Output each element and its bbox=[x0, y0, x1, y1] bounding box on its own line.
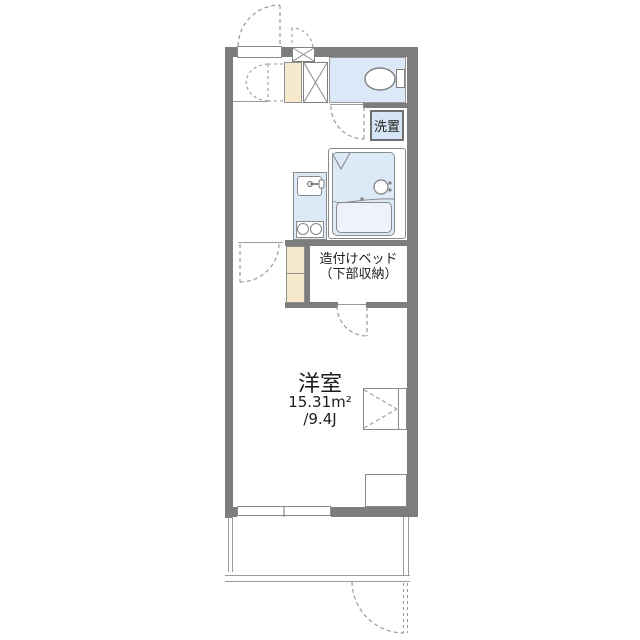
room-door-swing-arc bbox=[240, 243, 279, 282]
stove-burner-left-icon bbox=[298, 224, 309, 235]
floorplan-canvas: 洗置 造付けベッド （下部収納） 洋室 15.31m² /9.4J bbox=[0, 0, 640, 640]
meter-box-door-swing-arc bbox=[292, 28, 313, 47]
meter-box-cross-icon bbox=[293, 48, 314, 61]
bath-tap-dot-2 bbox=[388, 188, 391, 191]
balcony-partition-leaf bbox=[404, 583, 408, 633]
storage-door-lines bbox=[268, 64, 284, 101]
bath-tap-dot-1 bbox=[388, 181, 391, 184]
entrance-door-swing-arc bbox=[238, 5, 280, 46]
bath-mirror-icon bbox=[374, 180, 388, 194]
fixtures-overlay bbox=[0, 0, 640, 640]
bath-folding-door-icon bbox=[332, 153, 350, 169]
storage-closet-cross-icon bbox=[304, 63, 327, 102]
toilet-door-swing-arc bbox=[331, 106, 364, 139]
toilet-bowl-icon bbox=[365, 68, 395, 90]
stove-burner-right-icon bbox=[311, 224, 322, 235]
bath-drain-dot bbox=[360, 197, 363, 200]
appliance-space-triangle bbox=[364, 390, 397, 428]
faucet-handle bbox=[319, 180, 324, 188]
storage-door-swing-arcs bbox=[246, 64, 268, 101]
bed-door-swing-arc bbox=[337, 306, 367, 336]
balcony-partition-swing-arc bbox=[352, 582, 404, 633]
